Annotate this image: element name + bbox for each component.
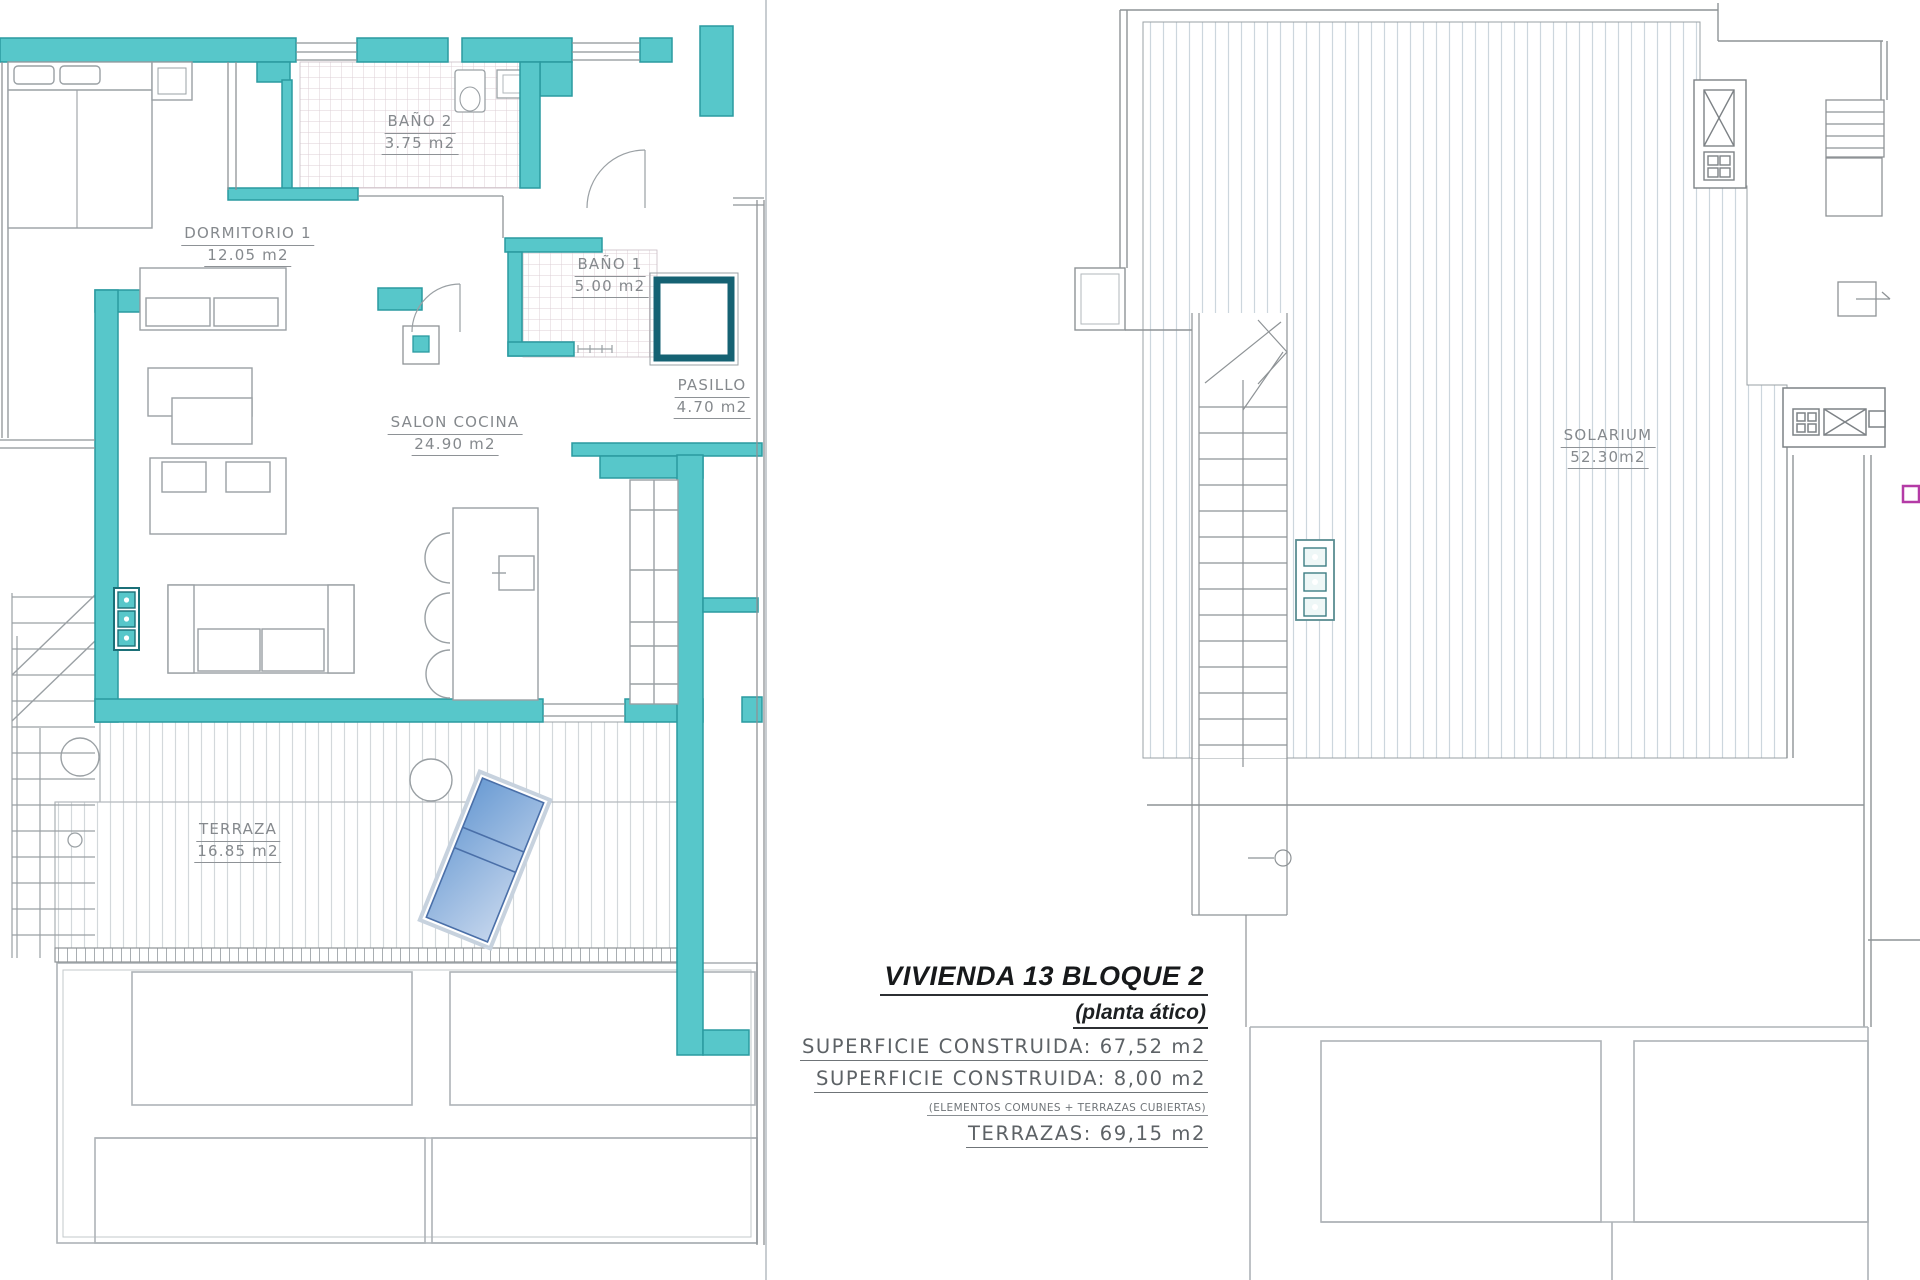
radiator-fixture [1296,540,1334,620]
room-label-terraza: TERRAZA 16.85 m2 [194,820,281,863]
terraces-value: 69,15 m2 [1100,1122,1206,1145]
room-name: PASILLO [675,376,750,398]
kitchen-column [403,326,439,364]
room-name: SALON COCINA [388,413,523,435]
terrace-table [410,759,452,801]
room-name: TERRAZA [196,820,280,842]
room-area: 4.70 m2 [674,398,751,420]
sofa [168,585,354,673]
sofa [140,268,286,330]
left-plan [0,26,764,1245]
room-label-bano1: BAÑO 1 5.00 m2 [572,255,649,298]
room-area: 24.90 m2 [411,435,498,457]
terraces-label: TERRAZAS: [968,1122,1092,1145]
terrace-table [61,738,99,776]
room-name: BAÑO 1 [574,255,645,277]
room-label-solarium: SOLARIUM 52.30m2 [1561,426,1656,469]
coffee-table [172,398,252,444]
stairwell [1192,313,1287,758]
upper-right-structure [1826,100,1890,316]
surface-value: 67,52 m2 [1100,1035,1206,1058]
room-area: 12.05 m2 [204,246,291,268]
room-label-dormitorio: DORMITORIO 1 12.05 m2 [181,224,314,267]
surface-label: SUPERFICIE CONSTRUIDA: [816,1067,1106,1090]
room-name: DORMITORIO 1 [181,224,314,246]
bed [8,62,152,228]
shower [657,280,731,358]
room-area: 3.75 m2 [382,134,459,156]
room-label-bano2: BAÑO 2 3.75 m2 [382,112,459,155]
room-label-salon: SALON COCINA 24.90 m2 [388,413,523,456]
surface-value: 8,00 m2 [1114,1067,1206,1090]
toilet [455,70,485,112]
terrace-railing [55,948,677,962]
surface-note: (ELEMENTOS COMUNES + TERRAZAS CUBIERTAS) [927,1102,1208,1116]
kitchen-island [425,508,538,700]
plan-title: VIVIENDA 13 BLOQUE 2 [880,961,1208,996]
accent-marker [1903,486,1919,502]
room-label-pasillo: PASILLO 4.70 m2 [674,376,751,419]
drain-symbol [68,833,82,847]
title-block: VIVIENDA 13 BLOQUE 2 (planta ático) SUPE… [800,956,1208,1148]
surface-common-line: SUPERFICIE CONSTRUIDA: 8,00 m2 [814,1066,1208,1093]
wardrobe [630,480,678,704]
room-name: BAÑO 2 [384,112,455,134]
room-area: 16.85 m2 [194,842,281,864]
room-name: SOLARIUM [1561,426,1656,448]
terraces-line: TERRAZAS: 69,15 m2 [966,1121,1208,1148]
room-area: 5.00 m2 [572,277,649,299]
lower-floor-outlines [57,963,757,1243]
dining-table [150,458,286,534]
counter-fixture [1783,388,1885,447]
lower-floor-outlines [1250,1027,1868,1280]
surface-constructed-line: SUPERFICIE CONSTRUIDA: 67,52 m2 [800,1034,1208,1061]
radiator-fixture [114,588,139,650]
plan-subtitle: (planta ático) [1073,1001,1208,1029]
chimney-fixture [1694,80,1746,188]
room-area: 52.30m2 [1567,448,1649,470]
floorplan-sheet: DORMITORIO 1 12.05 m2 BAÑO 2 3.75 m2 BAÑ… [0,0,1920,1280]
surface-label: SUPERFICIE CONSTRUIDA: [802,1035,1092,1058]
